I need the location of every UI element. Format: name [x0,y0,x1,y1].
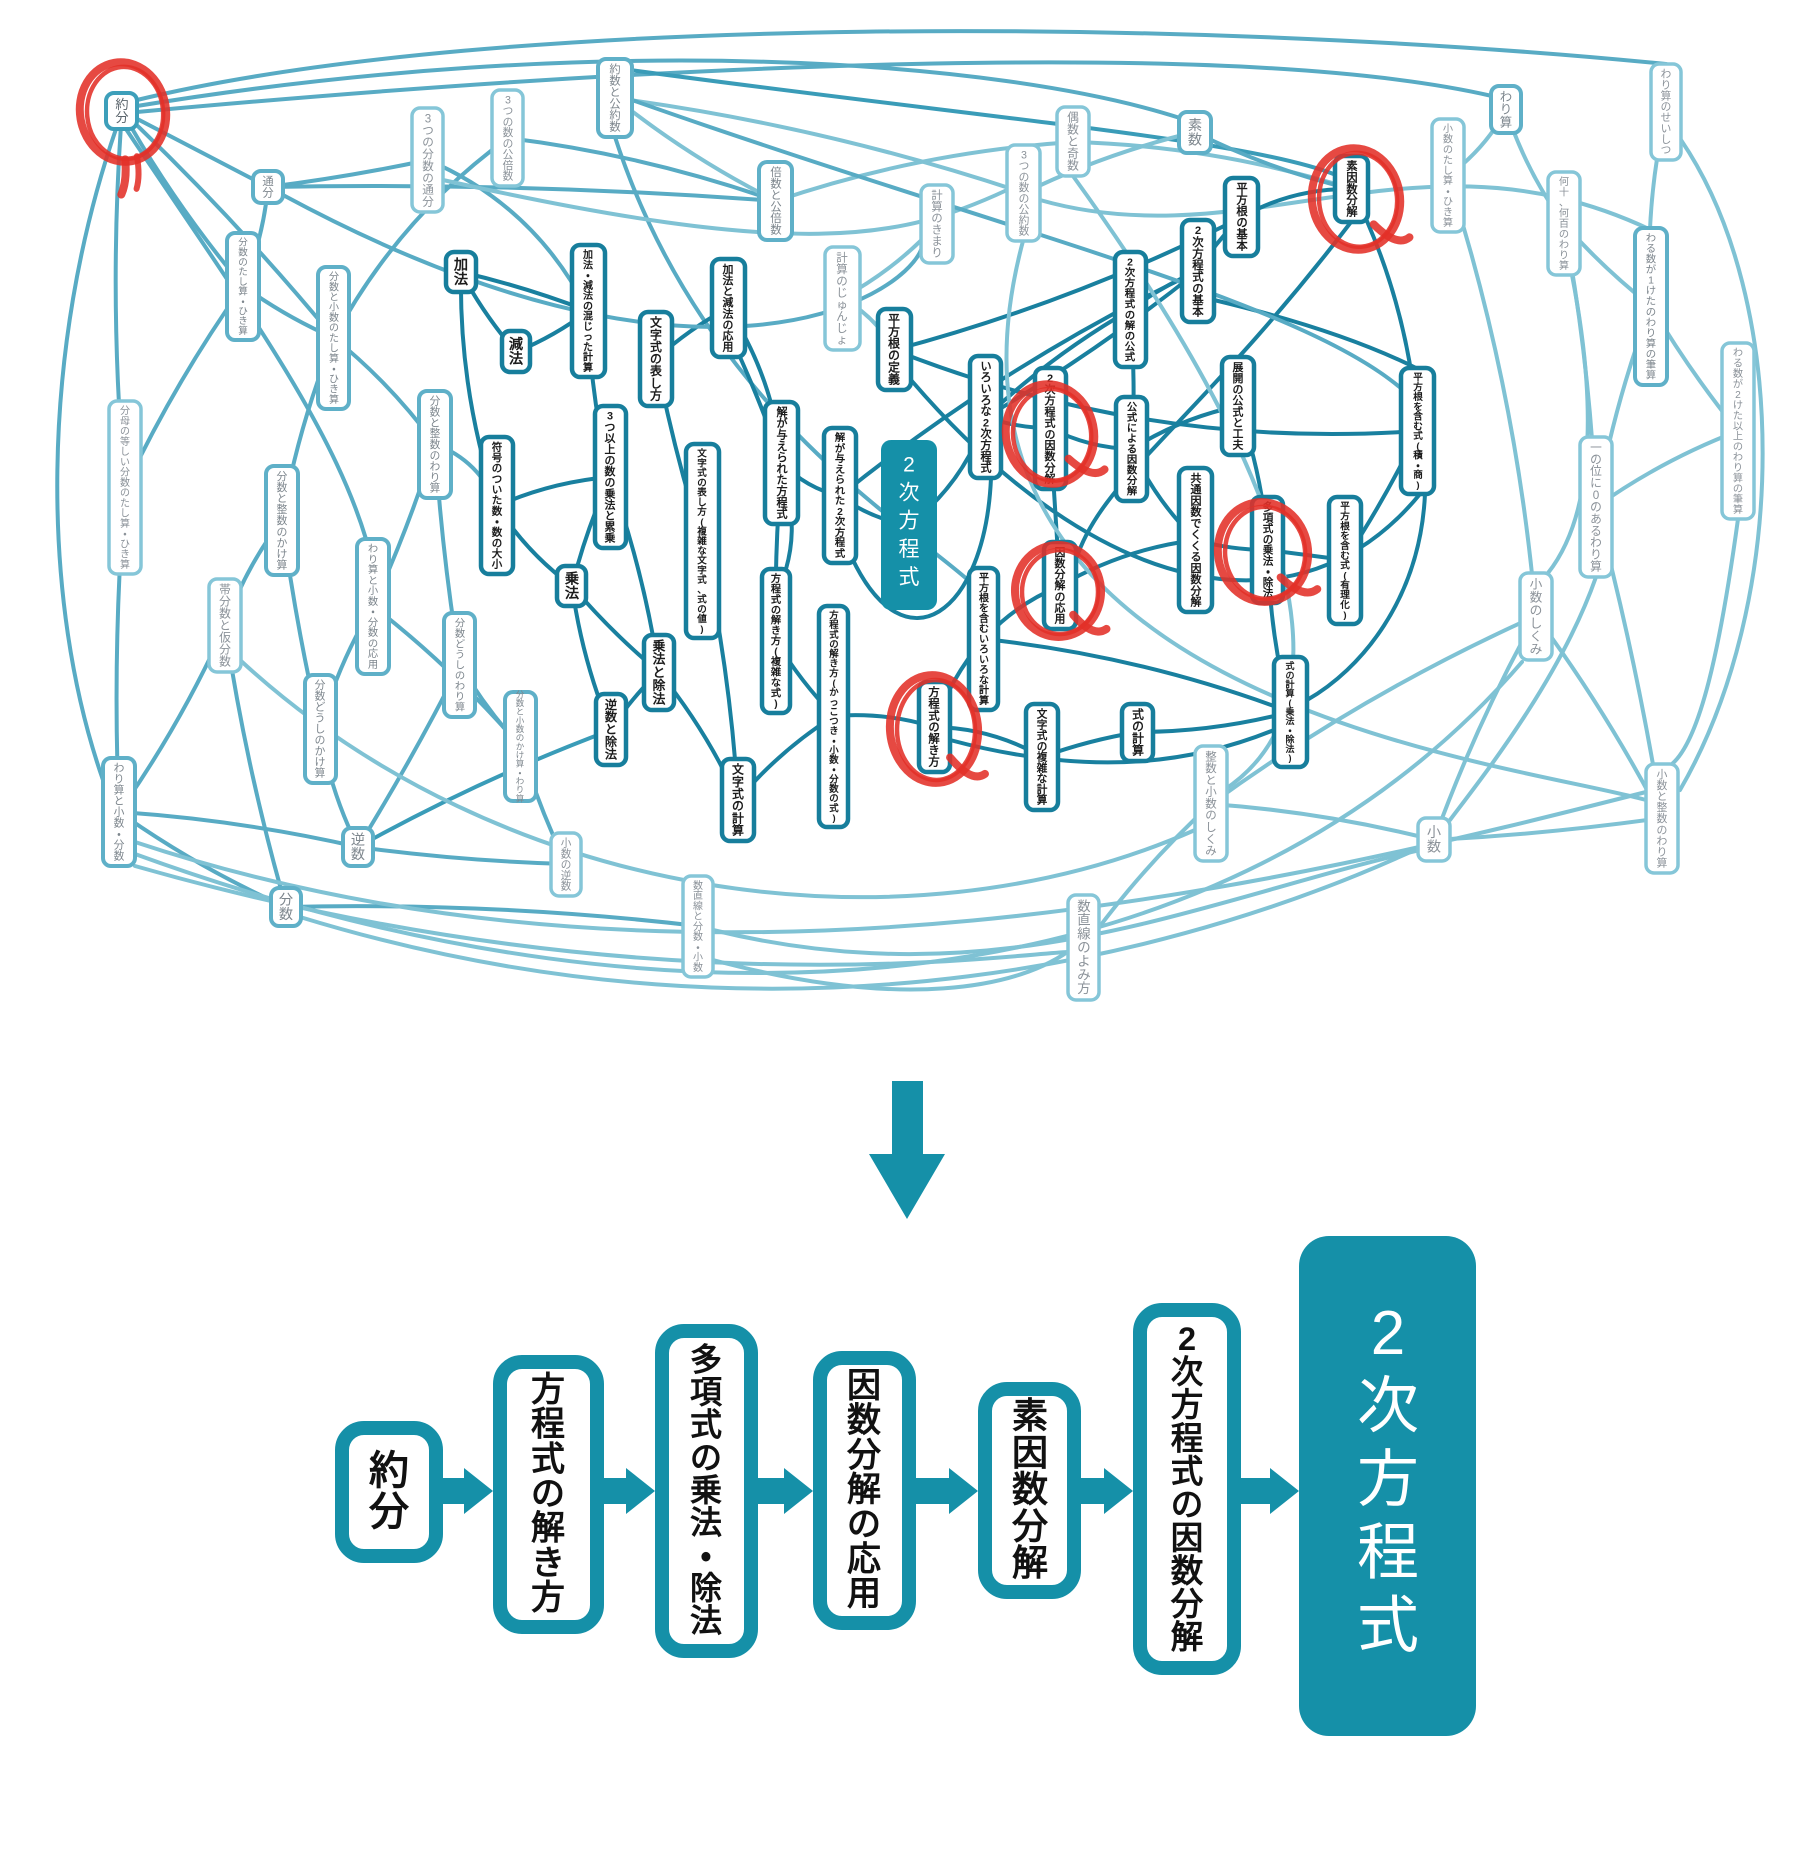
svg-text:因数分解の応用: 因数分解の応用 [846,1367,882,1613]
svg-text:加法と減法の応用: 加法と減法の応用 [722,262,734,354]
svg-text:分数と小数のたし算・ひき算: 分数と小数のたし算・ひき算 [329,271,339,406]
svg-text:乗法と除法: 乗法と除法 [653,639,666,707]
svg-text:小数の逆数: 小数の逆数 [561,838,572,893]
svg-text:2次方程式の解の公式: 2次方程式の解の公式 [1124,257,1136,363]
svg-text:素数: 素数 [1188,118,1202,149]
svg-text:3つの分数の通分: 3つの分数の通分 [422,112,434,208]
svg-text:小数と整数のわり算: 小数と整数のわり算 [1657,768,1668,870]
svg-text:共通因数でくくる因数分解: 共通因数でくくる因数分解 [1190,471,1203,609]
svg-text:文字式の複雑な計算: 文字式の複雑な計算 [1036,708,1048,807]
svg-text:平方根を含む式(積・商): 平方根を含む式(積・商) [1412,373,1423,491]
svg-text:わり算のせいしつ: わり算のせいしつ [1661,69,1672,157]
svg-text:文字式の表し方: 文字式の表し方 [649,316,662,403]
svg-text:平方根の定義: 平方根の定義 [888,313,900,387]
svg-text:方程式の解き方(かっこつき・小数・分数の式): 方程式の解き方(かっこつき・小数・分数の式) [828,610,839,823]
svg-text:乗法: 乗法 [564,571,580,603]
svg-text:解が与えられた2次方程式: 解が与えられた2次方程式 [834,431,846,560]
svg-text:倍数と公倍数: 倍数と公倍数 [770,166,781,237]
svg-text:わる数が1けたのわり算の筆算: わる数が1けたのわり算の筆算 [1646,232,1657,381]
svg-text:わり算と小数・分数の応用: わり算と小数・分数の応用 [368,543,379,671]
svg-text:多項式の乗法・除法: 多項式の乗法・除法 [1262,501,1274,600]
svg-text:分数どうしのかけ算: 分数どうしのかけ算 [315,679,326,780]
svg-text:平方根の基本: 平方根の基本 [1235,182,1248,253]
svg-text:因数分解の応用: 因数分解の応用 [1054,545,1067,626]
svg-text:加法・減法の混じった計算: 加法・減法の混じった計算 [582,248,593,374]
svg-text:通分: 通分 [262,175,274,200]
svg-text:2次方程式の因数分解: 2次方程式の因数分解 [1170,1321,1204,1655]
svg-text:多項式の乗法・除法: 多項式の乗法・除法 [690,1341,723,1638]
svg-text:約数と公約数: 約数と公約数 [609,62,620,134]
svg-text:小数: 小数 [1427,825,1441,856]
svg-text:逆数: 逆数 [351,833,365,864]
svg-text:小数のたし算・ひき算: 小数のたし算・ひき算 [1443,123,1453,229]
svg-text:帯分数と仮分数: 帯分数と仮分数 [219,583,231,669]
svg-text:小数のしくみ: 小数のしくみ [1530,577,1543,656]
svg-text:わる数が2けた以上のわり算の筆算: わる数が2けた以上のわり算の筆算 [1733,347,1743,516]
svg-text:数直線のよみ方: 数直線のよみ方 [1077,899,1091,996]
svg-text:逆数と除法: 逆数と除法 [604,697,618,762]
svg-text:分母の等しい分数のたし算・ひき算: 分母の等しい分数のたし算・ひき算 [120,405,130,571]
svg-text:分数のたし算・ひき算: 分数のたし算・ひき算 [238,238,248,337]
svg-text:偶数と奇数: 偶数と奇数 [1067,111,1079,173]
svg-text:文字式の表し方(複雑な文字式、式の値): 文字式の表し方(複雑な文字式、式の値) [696,448,707,635]
svg-text:計算のじゅんじょ: 計算のじゅんじょ [836,250,848,346]
svg-text:符号のついた数・数の大小: 符号のついた数・数の大小 [491,440,503,570]
svg-text:方程式の解き方: 方程式の解き方 [531,1371,565,1617]
svg-text:3つの数の公約数: 3つの数の公約数 [1019,150,1030,238]
svg-text:何十、何百のわり算: 何十、何百のわり算 [1559,175,1569,272]
svg-text:分数と整数のかけ算: 分数と整数のかけ算 [277,470,288,572]
svg-text:解が与えられた方程式: 解が与えられた方程式 [775,405,788,521]
svg-text:展開の公式と工夫: 展開の公式と工夫 [1233,361,1244,452]
svg-text:分数と小数のかけ算・わり算: 分数と小数のかけ算・わり算 [516,689,525,803]
svg-text:数直線と分数・小数: 数直線と分数・小数 [693,879,703,974]
svg-text:わり算と小数・分数: わり算と小数・分数 [114,762,125,863]
svg-text:3つ以上の数の乗法と累乗: 3つ以上の数の乗法と累乗 [604,411,616,545]
svg-text:方程式の解き方: 方程式の解き方 [928,685,940,769]
svg-text:一の位に0のあるわり算: 一の位に0のあるわり算 [1590,441,1602,573]
svg-text:計算のきまり: 計算のきまり [931,188,942,260]
svg-text:分数: 分数 [279,893,293,924]
svg-text:文字式の計算: 文字式の計算 [731,763,744,838]
svg-text:整数と小数のしくみ: 整数と小数のしくみ [1205,749,1217,857]
svg-text:いろいろな2次方程式: いろいろな2次方程式 [979,361,992,475]
svg-text:約分: 約分 [368,1449,410,1534]
svg-text:平方根を含むいろいろな計算: 平方根を含むいろいろな計算 [978,572,990,707]
svg-text:約分: 約分 [115,97,128,125]
svg-text:加法: 加法 [453,258,469,289]
svg-text:素因数分解: 素因数分解 [1011,1395,1049,1583]
svg-text:式の計算(乗法・除法): 式の計算(乗法・除法) [1285,660,1295,763]
svg-text:分数どうしのわり算: 分数どうしのわり算 [455,617,466,713]
svg-text:平方根を含む式(有理化): 平方根を含む式(有理化) [1339,502,1350,621]
svg-text:式の計算: 式の計算 [1131,708,1144,758]
svg-text:わり算: わり算 [1500,90,1512,129]
svg-text:減法: 減法 [509,336,524,368]
svg-text:2次方程式の基本: 2次方程式の基本 [1191,225,1204,318]
svg-text:3つの数の公倍数: 3つの数の公倍数 [503,95,514,183]
svg-text:分数と整数のわり算: 分数と整数のわり算 [430,396,441,495]
svg-text:方程式の解き方(複雑な式): 方程式の解き方(複雑な式) [770,572,782,710]
svg-text:素因数分解: 素因数分解 [1345,159,1358,219]
svg-text:公式による因数分解: 公式による因数分解 [1126,401,1138,497]
